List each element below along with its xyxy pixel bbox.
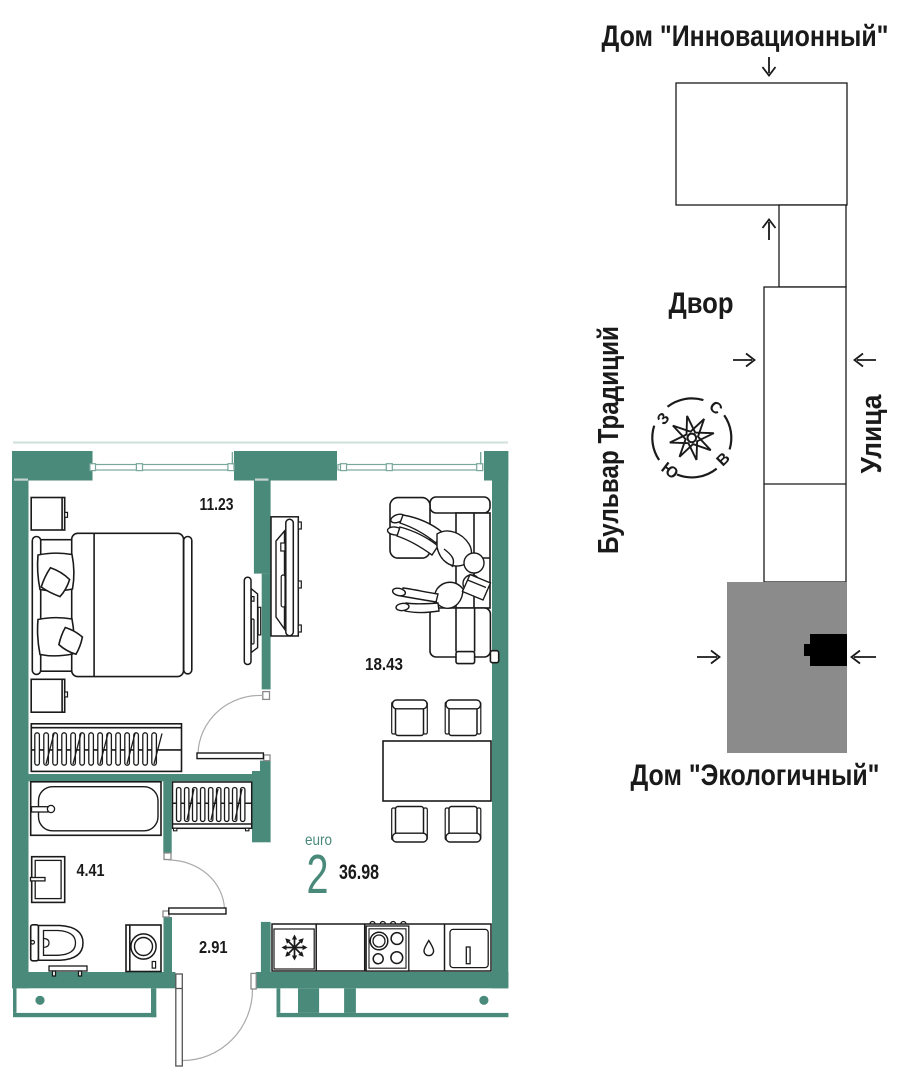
svg-text:18.43: 18.43 xyxy=(365,654,403,674)
svg-text:Дом "Экологичный": Дом "Экологичный" xyxy=(631,759,880,792)
svg-text:Бульвар Традиций: Бульвар Традиций xyxy=(593,326,625,554)
svg-text:36.98: 36.98 xyxy=(339,861,379,884)
svg-text:Дом "Инновационный": Дом "Инновационный" xyxy=(602,20,889,53)
svg-text:Улица: Улица xyxy=(856,394,888,474)
svg-text:Двор: Двор xyxy=(669,287,734,320)
svg-text:4.41: 4.41 xyxy=(77,860,105,880)
svg-text:11.23: 11.23 xyxy=(200,494,234,514)
svg-text:2.91: 2.91 xyxy=(199,937,228,957)
svg-text:2: 2 xyxy=(307,843,329,905)
